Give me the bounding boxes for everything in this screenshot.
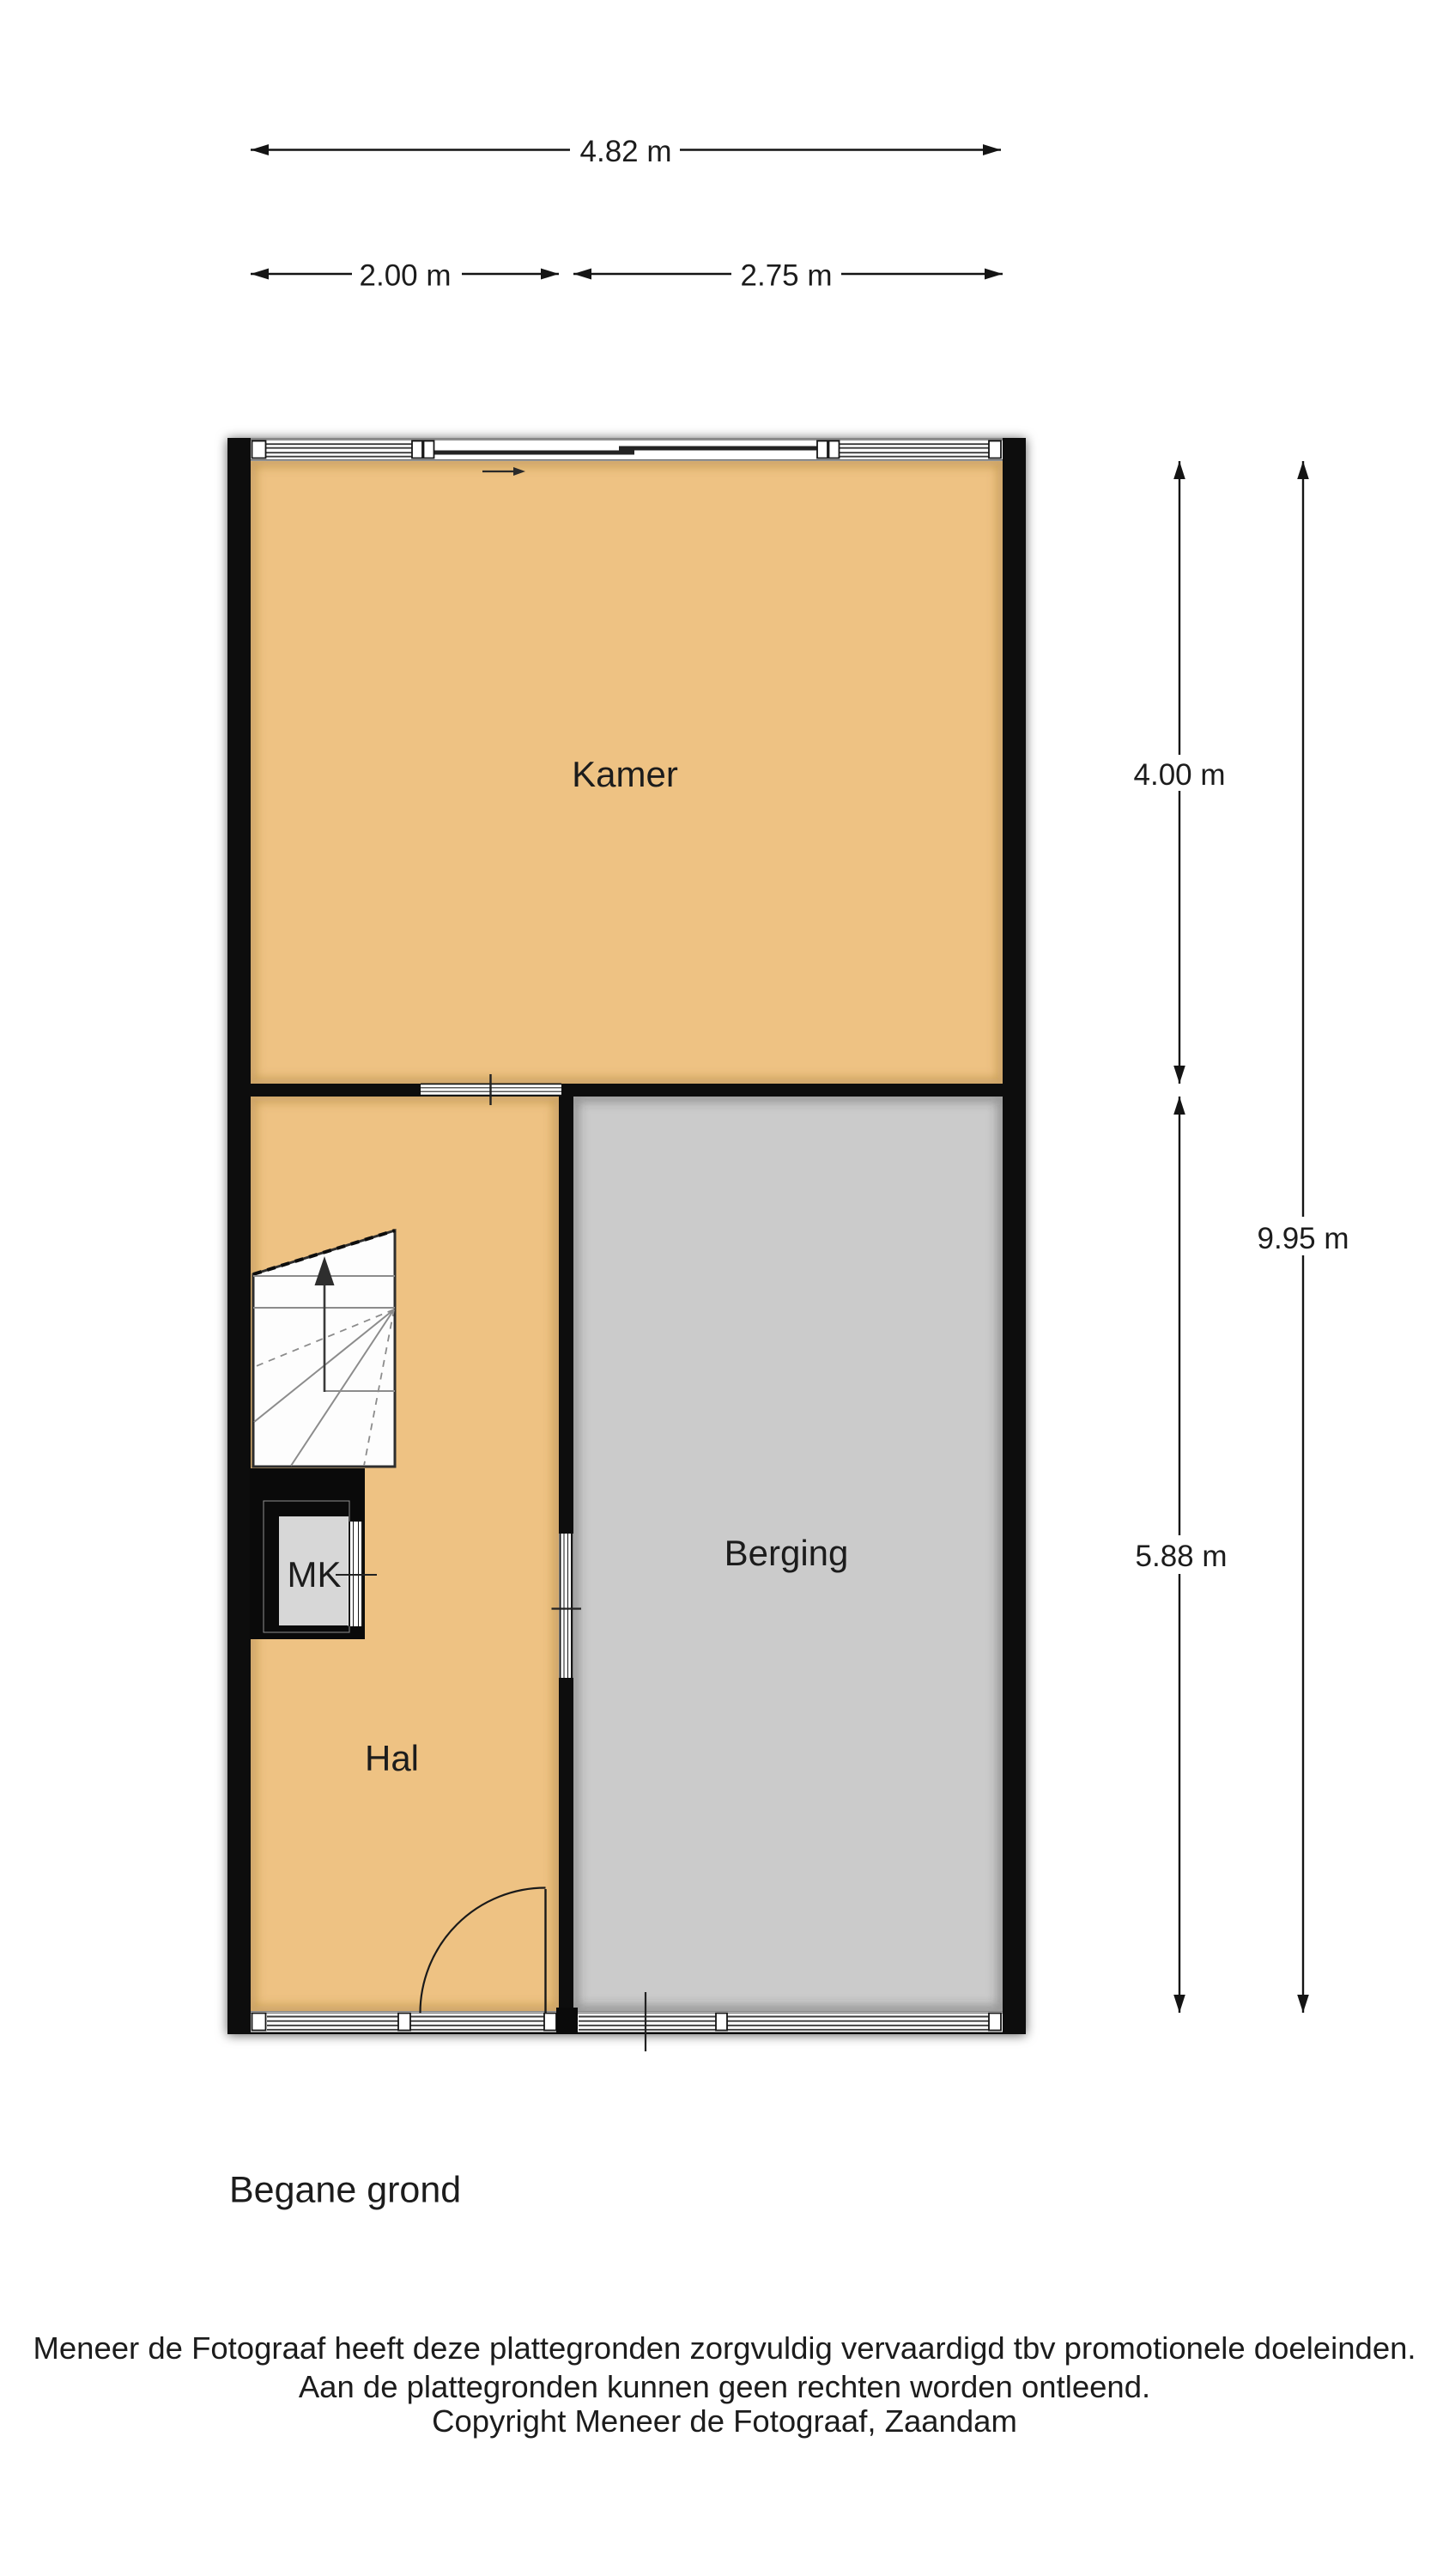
svg-text:2.00 m: 2.00 m — [360, 259, 452, 293]
svg-text:Berging: Berging — [724, 1533, 849, 1573]
svg-text:Copyright Meneer de Fotograaf,: Copyright Meneer de Fotograaf, Zaandam — [432, 2403, 1017, 2439]
svg-text:MK: MK — [288, 1554, 342, 1595]
svg-text:Meneer de Fotograaf heeft deze: Meneer de Fotograaf heeft deze plattegro… — [33, 2330, 1416, 2366]
svg-text:Hal: Hal — [365, 1738, 419, 1778]
svg-text:Kamer: Kamer — [572, 754, 678, 794]
svg-text:4.82 m: 4.82 m — [580, 135, 672, 168]
svg-text:Aan de plattegronden kunnen ge: Aan de plattegronden kunnen geen rechten… — [299, 2369, 1150, 2404]
svg-text:4.00 m: 4.00 m — [1134, 758, 1226, 792]
svg-text:Begane grond: Begane grond — [229, 2170, 461, 2211]
svg-text:5.88 m: 5.88 m — [1136, 1540, 1228, 1573]
svg-text:2.75 m: 2.75 m — [741, 259, 833, 293]
svg-text:9.95 m: 9.95 m — [1258, 1222, 1349, 1255]
